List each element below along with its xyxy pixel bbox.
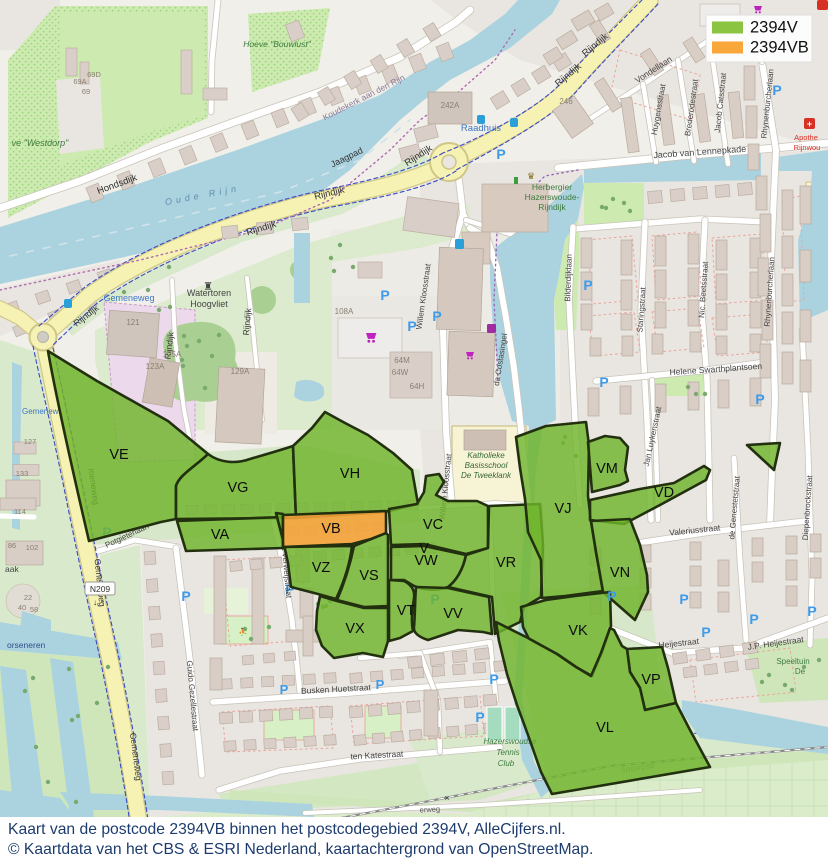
svg-text:P: P	[181, 588, 190, 604]
svg-text:2394VB: 2394VB	[750, 39, 809, 57]
svg-text:121: 121	[126, 318, 140, 327]
svg-text:VZ: VZ	[312, 560, 331, 576]
svg-text:De: De	[795, 667, 806, 676]
svg-text:♛: ♛	[527, 171, 535, 181]
svg-text:N209: N209	[90, 584, 111, 594]
svg-text:↓: ↓	[93, 598, 97, 607]
svg-text:40: 40	[18, 603, 26, 612]
svg-text:P: P	[583, 277, 592, 293]
svg-text:P: P	[607, 588, 616, 604]
svg-text:64M: 64M	[394, 356, 410, 365]
svg-text:VA: VA	[211, 527, 230, 543]
svg-text:VN: VN	[610, 565, 630, 581]
svg-text:P: P	[280, 682, 289, 697]
svg-text:P: P	[599, 374, 608, 390]
svg-text:Hoogvliet: Hoogvliet	[190, 299, 228, 309]
svg-text:129A: 129A	[231, 367, 250, 376]
svg-text:Rijnwou: Rijnwou	[794, 143, 821, 152]
svg-text:P: P	[701, 624, 710, 640]
svg-text:aak: aak	[5, 564, 19, 574]
svg-text:242A: 242A	[441, 101, 460, 110]
svg-text:↑: ↑	[101, 598, 105, 607]
svg-text:×: ×	[444, 793, 449, 803]
svg-text:© Kaartdata van het CBS & ESRI: © Kaartdata van het CBS & ESRI Nederland…	[8, 841, 593, 858]
svg-text:102: 102	[26, 543, 39, 552]
svg-text:VM: VM	[596, 461, 618, 477]
svg-text:P: P	[380, 287, 389, 303]
svg-text:69D: 69D	[87, 70, 101, 79]
svg-text:127: 127	[24, 437, 37, 446]
svg-text:86: 86	[8, 541, 16, 550]
svg-text:VR: VR	[496, 555, 516, 571]
svg-text:Katholieke: Katholieke	[467, 451, 505, 460]
svg-text:orseneren: orseneren	[7, 640, 46, 650]
svg-text:VJ: VJ	[555, 501, 572, 517]
svg-text:114: 114	[14, 507, 26, 516]
svg-text:VC: VC	[423, 517, 443, 533]
svg-text:Tennis: Tennis	[496, 748, 519, 757]
svg-text:P: P	[755, 391, 764, 407]
svg-text:De Tweeklank: De Tweeklank	[461, 471, 512, 480]
svg-text:VB: VB	[321, 521, 340, 537]
svg-text:133: 133	[16, 469, 29, 478]
svg-text:Watertoren: Watertoren	[187, 288, 231, 298]
svg-text:P: P	[496, 146, 505, 162]
svg-text:125A: 125A	[163, 350, 182, 359]
svg-text:VH: VH	[340, 466, 360, 482]
svg-text:Apothe: Apothe	[794, 133, 818, 142]
svg-text:P: P	[749, 611, 758, 627]
svg-text:VG: VG	[228, 480, 249, 496]
svg-text:Gemeneweg: Gemeneweg	[103, 293, 154, 303]
svg-text:P: P	[489, 671, 498, 687]
svg-text:Hoeve "Bouwlust": Hoeve "Bouwlust"	[243, 39, 311, 49]
svg-text:VP: VP	[641, 672, 660, 688]
svg-text:Club: Club	[498, 759, 515, 768]
svg-text:246: 246	[559, 97, 573, 106]
svg-text:2394V: 2394V	[750, 19, 798, 37]
svg-text:Raadhuis: Raadhuis	[461, 123, 501, 134]
svg-text:VV: VV	[443, 606, 463, 622]
svg-text:Rijndijk: Rijndijk	[538, 202, 566, 212]
svg-text:+: +	[807, 119, 812, 129]
svg-text:Hazerswoude-: Hazerswoude-	[525, 192, 580, 202]
svg-text:VE: VE	[109, 447, 129, 463]
svg-text:69: 69	[82, 87, 90, 96]
svg-text:Speeltuin: Speeltuin	[776, 657, 809, 666]
svg-text:22: 22	[24, 593, 32, 602]
svg-text:VK: VK	[568, 623, 588, 639]
svg-text:Bilderdijklaan: Bilderdijklaan	[563, 254, 574, 302]
svg-text:VD: VD	[654, 485, 674, 501]
svg-text:Herbergier: Herbergier	[532, 182, 572, 192]
svg-text:VS: VS	[359, 568, 378, 584]
svg-text:P: P	[432, 308, 441, 324]
svg-text:Kaart van de postcode 2394VB b: Kaart van de postcode 2394VB binnen het …	[8, 821, 566, 838]
svg-text:P: P	[679, 591, 688, 607]
svg-text:69A: 69A	[73, 77, 86, 86]
svg-text:P: P	[376, 677, 385, 692]
svg-text:Gemenew: Gemenew	[22, 407, 59, 416]
svg-text:P: P	[807, 603, 816, 619]
svg-text:64H: 64H	[410, 382, 425, 391]
svg-text:VW: VW	[414, 553, 438, 569]
svg-text:Basisschool: Basisschool	[465, 461, 508, 470]
svg-text:64W: 64W	[392, 368, 409, 377]
svg-text:123A: 123A	[146, 362, 165, 371]
svg-text:108A: 108A	[335, 307, 354, 316]
svg-text:erweg: erweg	[419, 804, 440, 814]
svg-text:ve "Westdorp": ve "Westdorp"	[12, 138, 70, 148]
svg-text:58: 58	[30, 605, 38, 614]
svg-text:P: P	[475, 709, 484, 725]
svg-text:VT: VT	[397, 603, 416, 619]
svg-text:VX: VX	[345, 621, 365, 637]
svg-text:VL: VL	[596, 720, 614, 736]
